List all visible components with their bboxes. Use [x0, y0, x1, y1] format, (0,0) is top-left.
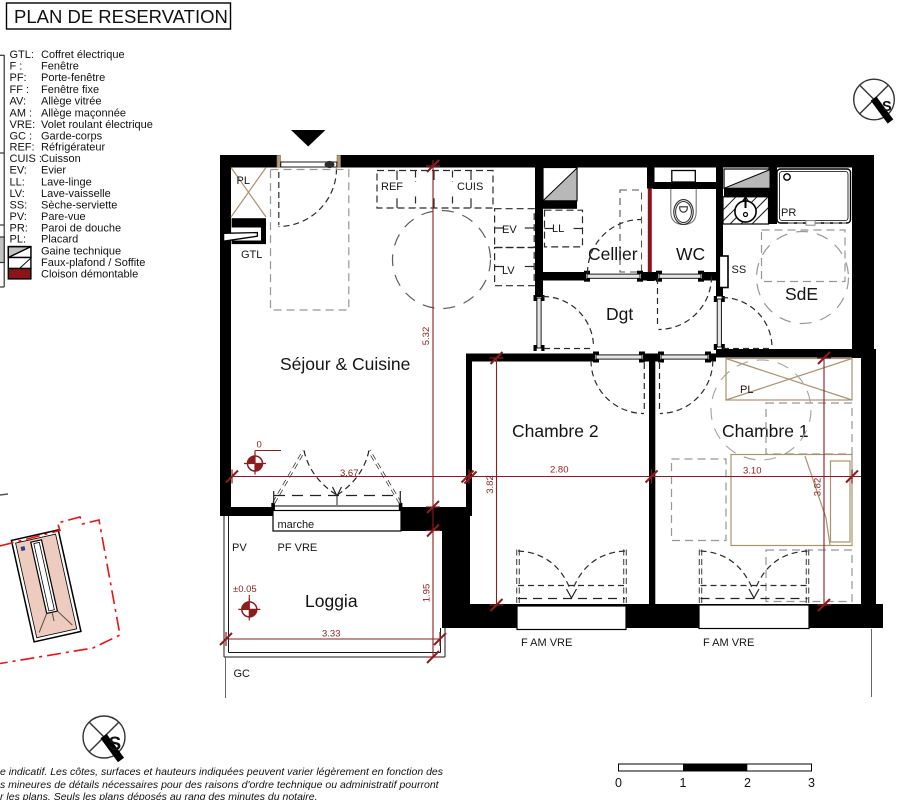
svg-text:GTL:: GTL:	[10, 49, 34, 61]
svg-text:Placard: Placard	[41, 234, 78, 246]
svg-text:PR:: PR:	[10, 223, 28, 235]
svg-text:Lave-vaisselle: Lave-vaisselle	[41, 188, 111, 200]
svg-text:PR: PR	[781, 207, 796, 219]
svg-text:SS: SS	[732, 264, 747, 276]
svg-text:EV: EV	[502, 224, 517, 236]
svg-text:Cuisson: Cuisson	[41, 153, 81, 165]
svg-text:LV:: LV:	[10, 188, 25, 200]
svg-text:Dgt: Dgt	[606, 304, 633, 324]
svg-text:CUIS :: CUIS :	[10, 153, 42, 165]
svg-text:Fenêtre fixe: Fenêtre fixe	[41, 84, 99, 96]
svg-text:AM :: AM :	[10, 107, 33, 119]
svg-text:PV:: PV:	[10, 211, 27, 223]
svg-text:PL: PL	[237, 175, 250, 187]
svg-text:marche: marche	[278, 519, 315, 531]
svg-text:GTL: GTL	[241, 249, 262, 261]
svg-text:Evier: Evier	[41, 165, 66, 177]
svg-text:Loggia: Loggia	[305, 591, 358, 611]
svg-text:Chambre 1: Chambre 1	[722, 421, 809, 441]
svg-text:Coffret électrique: Coffret électrique	[41, 49, 125, 61]
svg-text:AV:: AV:	[10, 96, 27, 108]
svg-text:PL: PL	[740, 384, 753, 396]
svg-text:Paroi de douche: Paroi de douche	[41, 223, 121, 235]
svg-text:EV:: EV:	[10, 165, 27, 177]
svg-text:LL:: LL:	[10, 177, 25, 189]
svg-text:Porte-fenêtre: Porte-fenêtre	[41, 72, 105, 84]
svg-text:1.95: 1.95	[422, 584, 433, 603]
svg-text:s mineures de détails nécessai: s mineures de détails nécessaires pour d…	[0, 779, 440, 791]
svg-text:F AM VRE: F AM VRE	[521, 637, 572, 649]
svg-text:CUIS: CUIS	[457, 181, 483, 193]
svg-text:2.80: 2.80	[550, 465, 569, 476]
svg-text:3,67: 3,67	[340, 468, 359, 479]
svg-text:GC: GC	[234, 668, 251, 680]
svg-text:GC :: GC :	[10, 131, 33, 143]
svg-text:Garde-corps: Garde-corps	[41, 131, 103, 143]
svg-text:REF:: REF:	[10, 142, 35, 154]
svg-text:2: 2	[744, 776, 751, 790]
svg-text:Cloison démontable: Cloison démontable	[41, 269, 138, 281]
svg-text:SS:: SS:	[10, 199, 28, 211]
svg-text:0: 0	[257, 440, 262, 451]
svg-text:WC: WC	[676, 244, 705, 264]
svg-text:Volet roulant électrique: Volet roulant électrique	[41, 119, 153, 131]
svg-text:Réfrigérateur: Réfrigérateur	[41, 142, 106, 154]
svg-text:3: 3	[808, 776, 815, 790]
svg-text:Chambre 2: Chambre 2	[512, 421, 599, 441]
svg-text:VRE:: VRE:	[10, 119, 36, 131]
svg-text:±0.05: ±0.05	[233, 584, 257, 595]
svg-text:REF: REF	[381, 181, 403, 193]
svg-text:Cellier: Cellier	[588, 244, 638, 264]
svg-text:1: 1	[680, 776, 687, 790]
svg-text:5.32: 5.32	[421, 327, 432, 346]
svg-text:Lave-linge: Lave-linge	[41, 177, 92, 189]
svg-text:Sèche-serviette: Sèche-serviette	[41, 199, 117, 211]
svg-text:F :: F :	[10, 61, 23, 73]
svg-text:PF:: PF:	[10, 72, 27, 84]
svg-text:S: S	[882, 99, 892, 115]
svg-text:3.10: 3.10	[743, 466, 762, 477]
svg-text:Fenêtre: Fenêtre	[41, 61, 79, 73]
svg-text:Allège vitrée: Allège vitrée	[41, 96, 102, 108]
svg-text:PL:: PL:	[10, 234, 27, 246]
svg-text:e indicatif. Les côtes, surfac: e indicatif. Les côtes, surfaces et haut…	[0, 766, 444, 778]
svg-text:Allège maçonnée: Allège maçonnée	[41, 107, 126, 119]
svg-text:Gaine technique: Gaine technique	[41, 246, 121, 258]
svg-text:Séjour & Cuisine: Séjour & Cuisine	[280, 354, 410, 374]
svg-text:Pare-vue: Pare-vue	[41, 211, 86, 223]
svg-text:3.33: 3.33	[322, 629, 341, 640]
svg-text:LV: LV	[502, 265, 515, 277]
svg-text:FF :: FF :	[10, 84, 30, 96]
svg-text:Faux-plafond / Soffite: Faux-plafond / Soffite	[41, 257, 145, 269]
svg-text:PLAN DE RESERVATION: PLAN DE RESERVATION	[14, 6, 228, 27]
svg-text:S: S	[109, 734, 122, 755]
svg-text:SdE: SdE	[785, 284, 818, 304]
svg-text:LL: LL	[552, 223, 564, 235]
svg-text:r les plans. Seuls les plans d: r les plans. Seuls les plans déposés au …	[0, 791, 318, 800]
svg-text:3.82: 3.82	[813, 478, 824, 497]
svg-text:F AM VRE: F AM VRE	[703, 637, 754, 649]
svg-text:PV: PV	[232, 542, 247, 554]
svg-text:3.82: 3.82	[485, 475, 496, 494]
svg-text:0: 0	[615, 776, 622, 790]
svg-text:PF VRE: PF VRE	[278, 542, 318, 554]
